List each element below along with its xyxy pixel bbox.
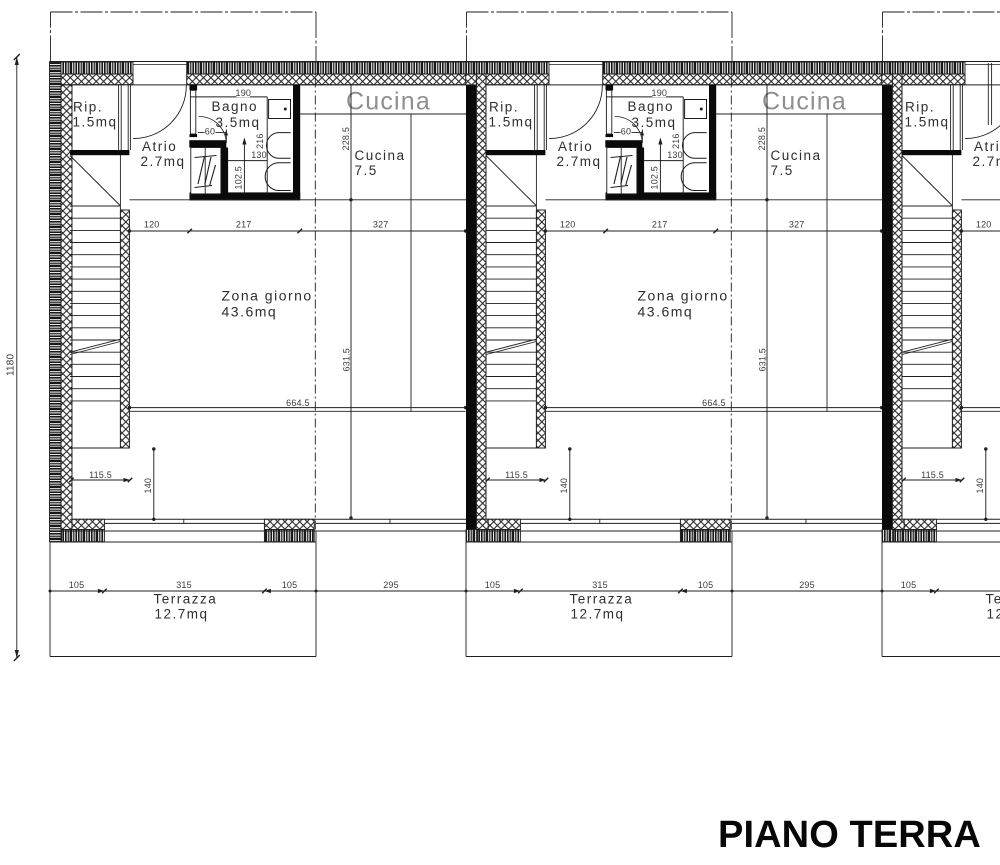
svg-text:1180: 1180 bbox=[6, 353, 17, 376]
svg-text:PIANO TERRA: PIANO TERRA bbox=[718, 814, 981, 856]
